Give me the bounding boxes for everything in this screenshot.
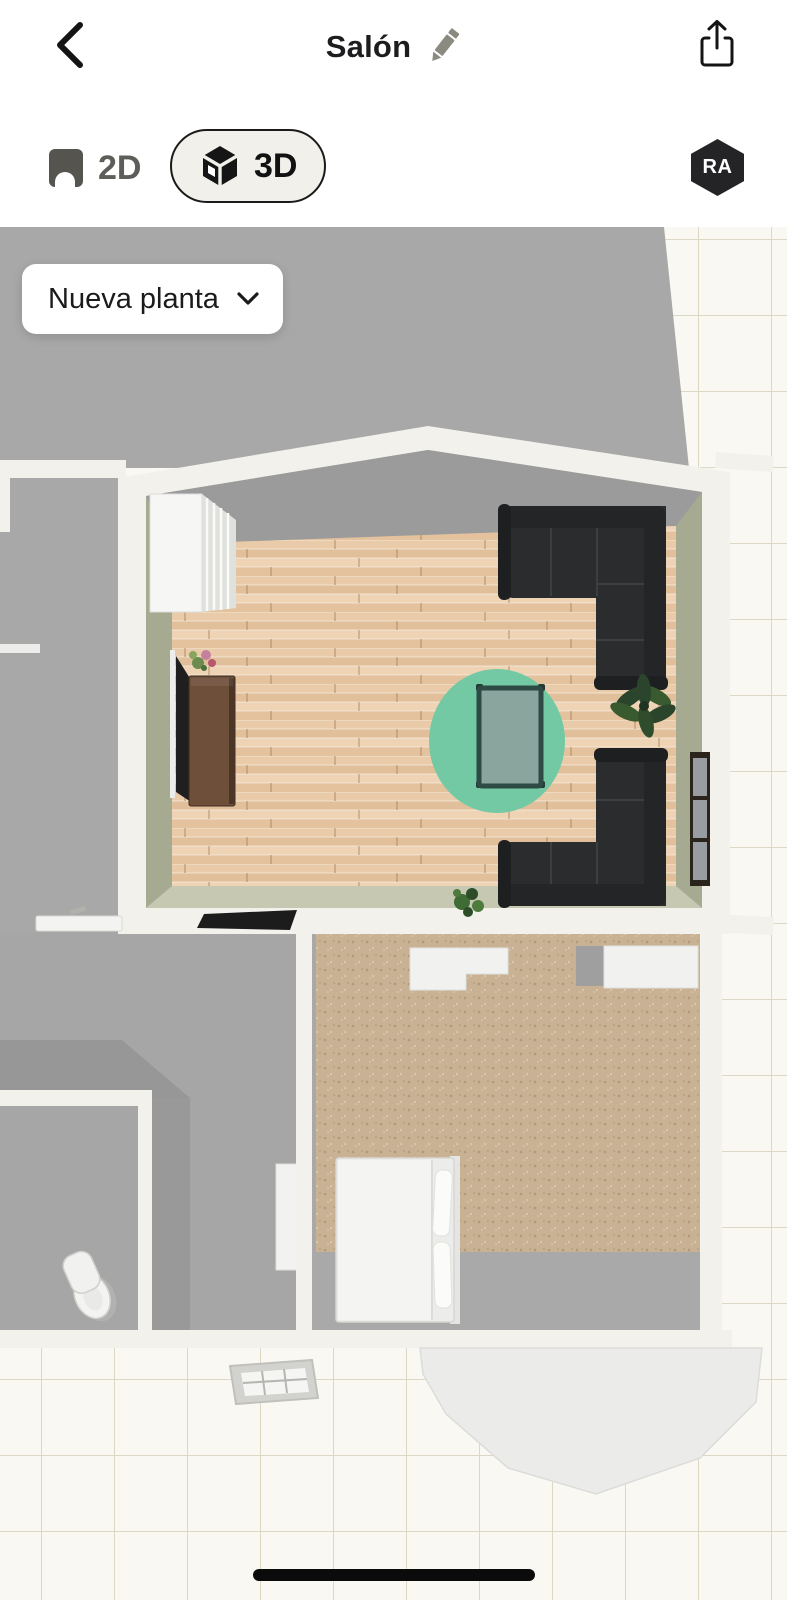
floor-selector-label: Nueva planta: [48, 283, 219, 316]
home-indicator[interactable]: [253, 1569, 535, 1581]
wall-mirror[interactable]: [690, 752, 710, 886]
bathroom-wall-right: [138, 1090, 152, 1332]
view-toggle-2d[interactable]: 2D: [48, 142, 141, 194]
baseboard: [170, 650, 175, 798]
south-exterior-wall: [0, 1330, 732, 1348]
ar-mode-label: RA: [703, 156, 733, 179]
wall-left-edge: [0, 460, 10, 532]
hall-bedroom-wall: [296, 932, 312, 1332]
pillow: [432, 1170, 452, 1237]
bedroom-right-wall: [700, 932, 722, 1332]
bathroom-wall-top: [0, 1090, 152, 1106]
neighbor-room-floor-left: [0, 468, 126, 932]
floorplan-2d-icon: [48, 147, 84, 189]
share-icon: [697, 18, 737, 70]
floorplan-canvas[interactable]: [0, 227, 787, 1600]
edit-title-button[interactable]: [427, 25, 461, 69]
wall-top-left: [0, 460, 126, 478]
chevron-down-icon: [237, 292, 259, 306]
header: Salón: [0, 0, 787, 227]
floor-selector-dropdown[interactable]: Nueva planta: [22, 264, 283, 334]
bed[interactable]: [336, 1156, 460, 1324]
skylight[interactable]: [230, 1360, 318, 1404]
title-group: Salón: [0, 22, 787, 72]
pillow: [433, 1242, 452, 1309]
page-title: Salón: [326, 29, 411, 65]
cube-3d-icon: [199, 144, 241, 188]
bathroom-wall-face: [152, 1098, 190, 1332]
wall-stub: [576, 946, 606, 986]
wall-flange-mid: [713, 914, 774, 935]
bookshelf[interactable]: [150, 494, 236, 612]
coffee-table[interactable]: [476, 684, 545, 788]
floorplanner-app: Salón: [0, 0, 787, 1600]
view-toggle-3d-label: 3D: [254, 147, 297, 186]
pencil-icon: [429, 25, 459, 67]
wardrobe-right[interactable]: [604, 946, 698, 988]
share-button[interactable]: [694, 16, 740, 74]
tv-sideboard[interactable]: [189, 676, 235, 806]
view-toggle-3d[interactable]: 3D: [170, 129, 326, 203]
floorplan-render: [0, 227, 787, 1600]
neighbor-door-mark: [0, 644, 40, 653]
room-salon[interactable]: [118, 426, 730, 934]
ar-mode-button[interactable]: RA: [691, 139, 744, 196]
view-toggle-2d-label: 2D: [98, 149, 141, 188]
